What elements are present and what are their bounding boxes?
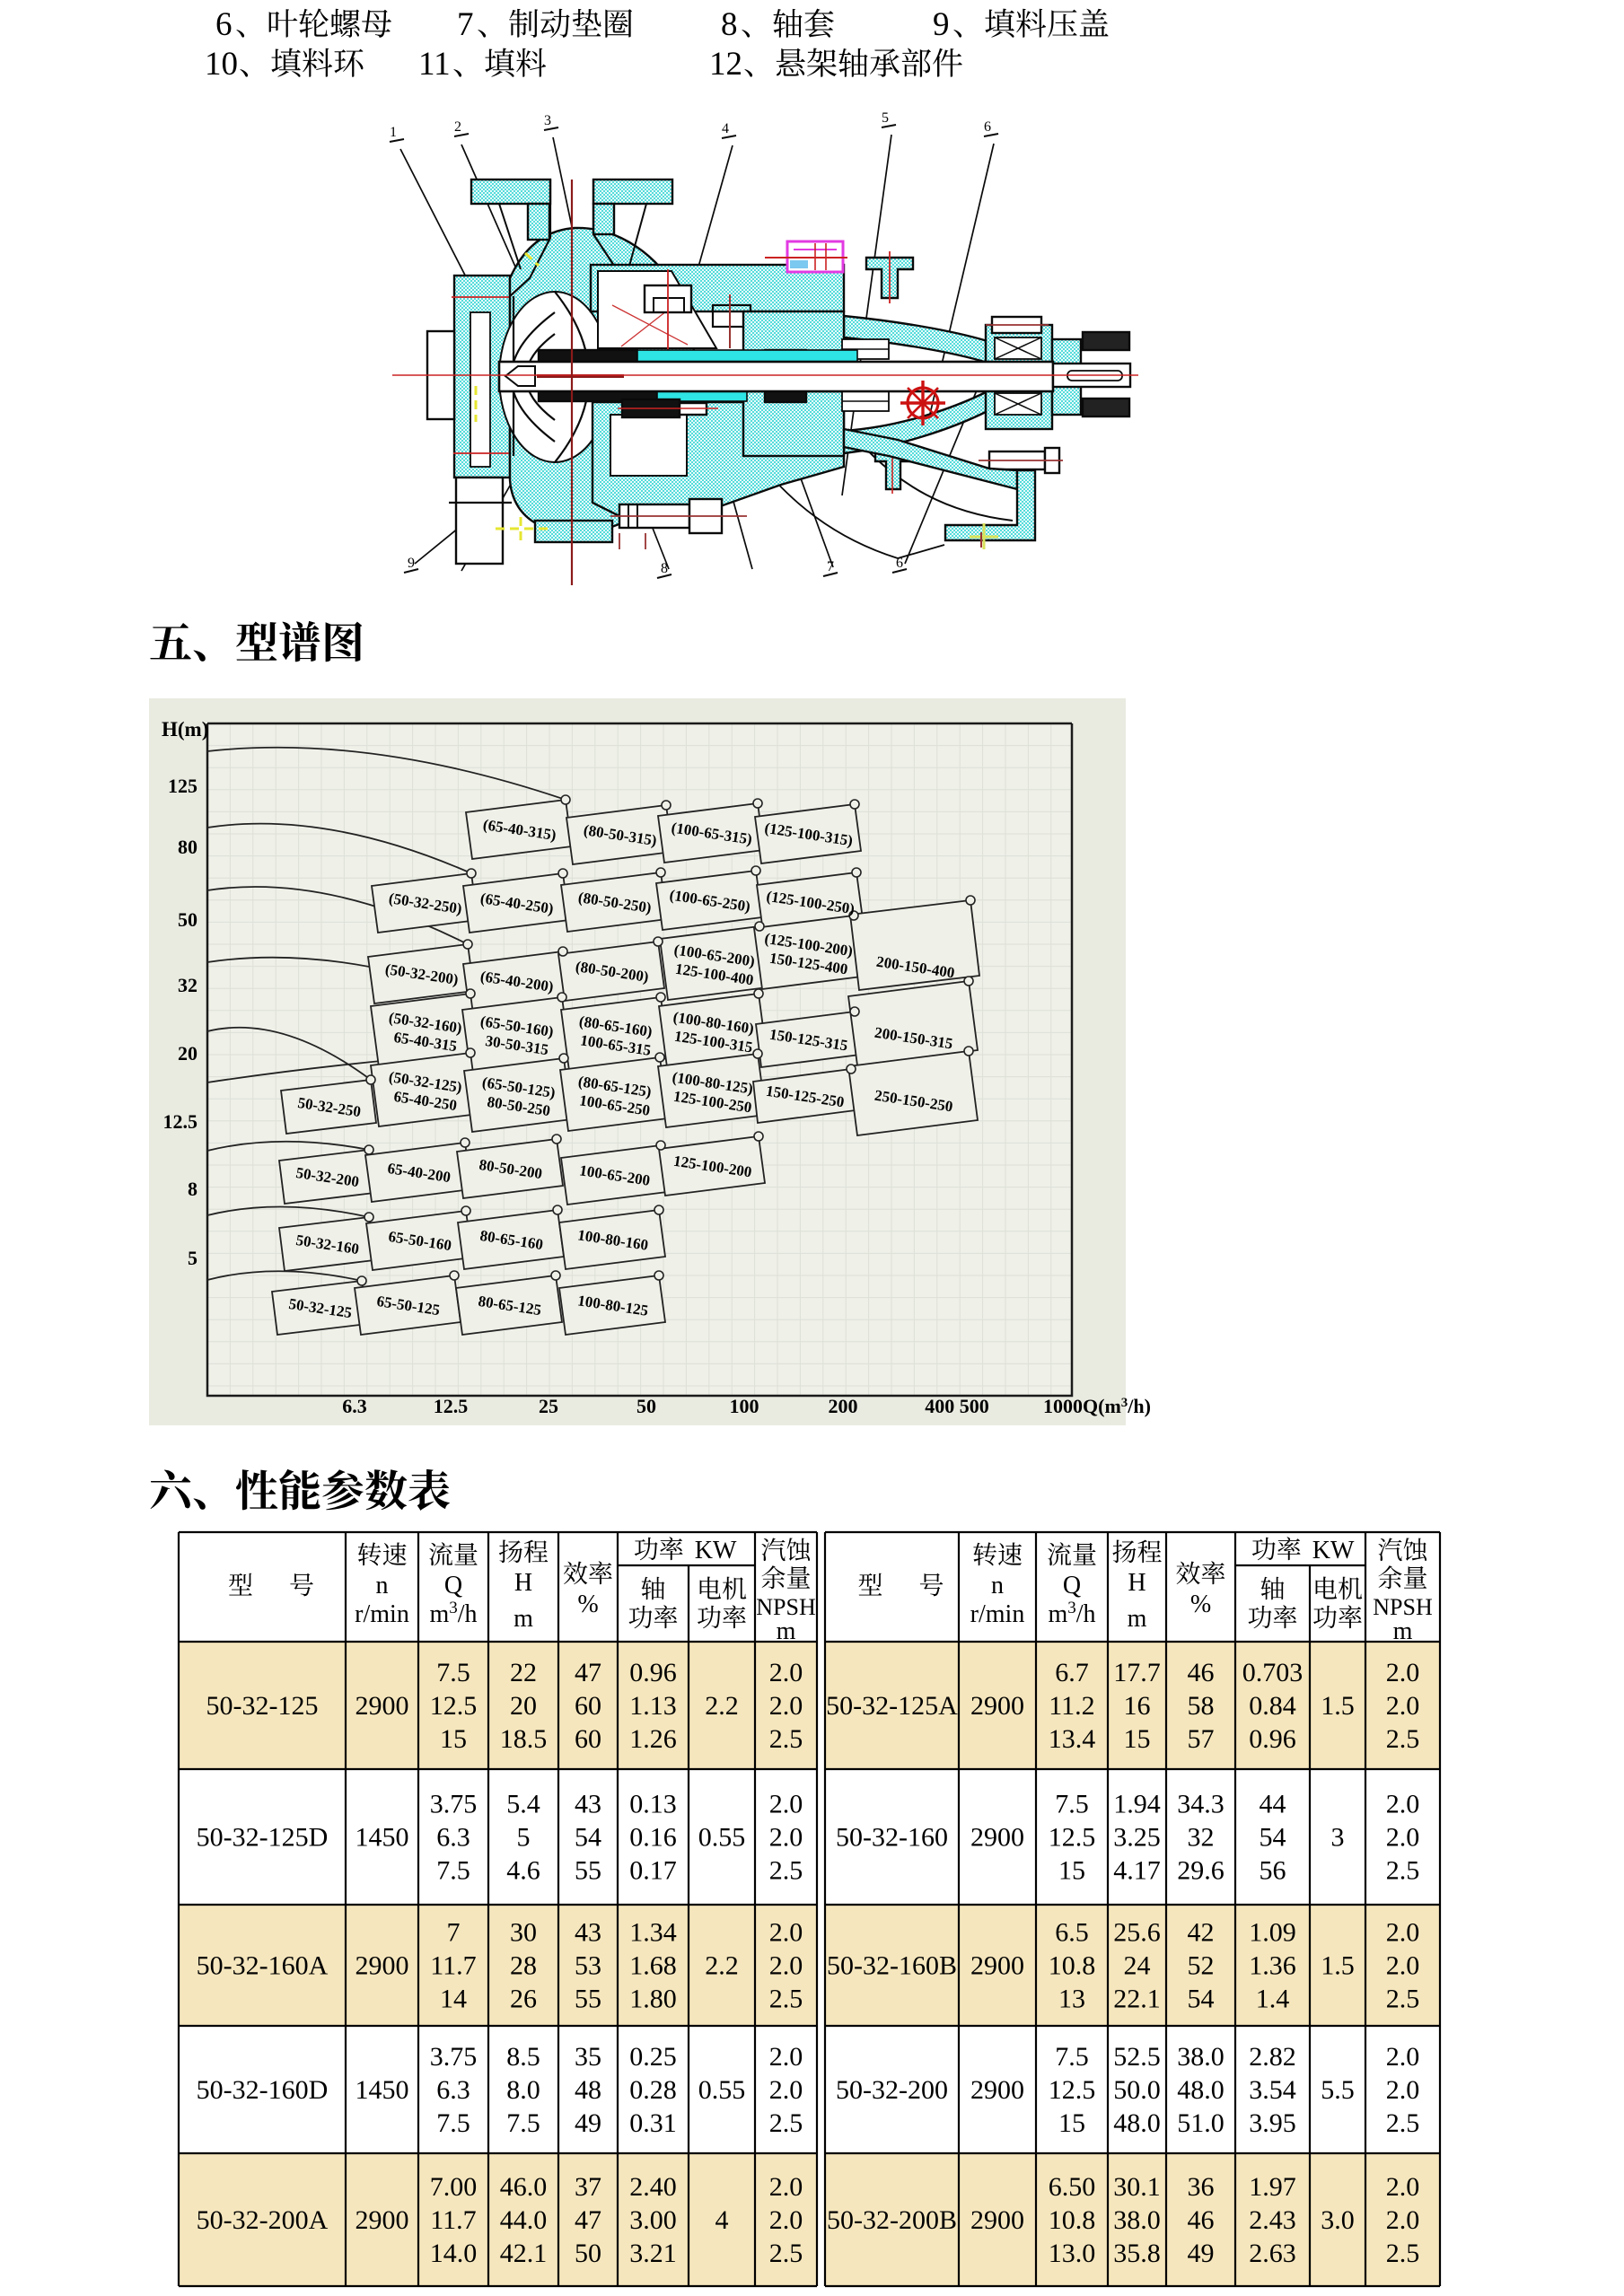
svg-text:2.0: 2.0: [769, 2172, 803, 2202]
svg-text:4: 4: [715, 2205, 729, 2235]
svg-text:0.55: 0.55: [698, 1823, 746, 1853]
svg-text:3.25: 3.25: [1113, 1823, 1161, 1853]
svg-text:m: m: [777, 1617, 796, 1645]
svg-text:2.0: 2.0: [1386, 1658, 1420, 1687]
svg-text:7.5: 7.5: [436, 2108, 470, 2138]
svg-text:50-32-160D: 50-32-160D: [197, 2075, 329, 2105]
svg-text:m: m: [1128, 1605, 1147, 1633]
svg-text:10: 10: [205, 46, 238, 83]
svg-text:2.0: 2.0: [1386, 1918, 1420, 1948]
svg-text:Q: Q: [444, 1572, 462, 1599]
svg-text:12.5: 12.5: [1049, 1823, 1096, 1853]
svg-text:1.5: 1.5: [1321, 1691, 1355, 1721]
svg-text:37: 37: [575, 2172, 601, 2202]
svg-text:50-32-200A: 50-32-200A: [197, 2205, 329, 2235]
svg-text:12.5: 12.5: [163, 1110, 198, 1133]
svg-text:1000Q(m3/h): 1000Q(m3/h): [1043, 1395, 1151, 1417]
svg-text:16: 16: [1124, 1691, 1151, 1721]
svg-text:7.5: 7.5: [1055, 1790, 1089, 1819]
svg-text:1450: 1450: [356, 2075, 409, 2105]
svg-text:0.96: 0.96: [629, 1658, 677, 1687]
svg-text:36: 36: [1188, 2172, 1215, 2202]
svg-text:29.6: 29.6: [1177, 1856, 1225, 1886]
svg-text:57: 57: [1188, 1724, 1215, 1754]
svg-text:2.0: 2.0: [769, 1918, 803, 1948]
svg-text:0.55: 0.55: [698, 2075, 746, 2105]
svg-text:12: 12: [709, 46, 742, 83]
svg-text:50-32-200B: 50-32-200B: [827, 2205, 957, 2235]
svg-text:11.7: 11.7: [430, 2205, 476, 2235]
svg-text:%: %: [577, 1591, 598, 1618]
svg-text:2900: 2900: [970, 1951, 1024, 1981]
svg-text:1: 1: [390, 125, 397, 140]
svg-text:6: 6: [984, 119, 991, 135]
svg-text:60: 60: [575, 1691, 601, 1721]
svg-text:22.1: 22.1: [1113, 1985, 1161, 2014]
svg-text:46.0: 46.0: [500, 2172, 548, 2202]
svg-text:8: 8: [721, 6, 738, 43]
svg-text:2.0: 2.0: [769, 1823, 803, 1853]
svg-text:52: 52: [1188, 1951, 1215, 1981]
svg-text:3.21: 3.21: [629, 2239, 677, 2268]
svg-text:44: 44: [1260, 1790, 1286, 1819]
svg-text:11.7: 11.7: [430, 1951, 476, 1981]
svg-text:13.4: 13.4: [1049, 1724, 1096, 1754]
svg-text:18.5: 18.5: [500, 1724, 548, 1754]
svg-text:6.7: 6.7: [1055, 1658, 1089, 1687]
svg-text:NPSH: NPSH: [1373, 1594, 1433, 1620]
svg-text:2.82: 2.82: [1249, 2042, 1296, 2072]
svg-text:7.5: 7.5: [436, 1856, 470, 1886]
svg-text:7.5: 7.5: [436, 1658, 470, 1687]
svg-text:50-32-125A: 50-32-125A: [826, 1691, 958, 1721]
svg-text:5.4: 5.4: [506, 1790, 540, 1819]
svg-text:NPSH: NPSH: [756, 1594, 816, 1620]
svg-text:2.5: 2.5: [769, 1856, 803, 1886]
svg-text:n: n: [991, 1572, 1004, 1599]
svg-text:2.0: 2.0: [769, 2075, 803, 2105]
svg-text:2900: 2900: [970, 2075, 1024, 2105]
svg-text:48.0: 48.0: [1113, 2108, 1161, 2138]
svg-text:5: 5: [517, 1823, 531, 1853]
svg-text:2.5: 2.5: [769, 2108, 803, 2138]
svg-text:12.5: 12.5: [430, 1691, 478, 1721]
svg-text:2.0: 2.0: [1386, 2042, 1420, 2072]
svg-text:100: 100: [730, 1395, 759, 1417]
svg-text:6: 6: [215, 6, 233, 43]
svg-text:46: 46: [1188, 1658, 1215, 1687]
svg-text:3.75: 3.75: [430, 2042, 478, 2072]
svg-text:35: 35: [575, 2042, 601, 2072]
svg-text:m: m: [1393, 1617, 1413, 1645]
svg-text:200: 200: [829, 1395, 858, 1417]
svg-text:55: 55: [575, 1856, 601, 1886]
svg-text:2.5: 2.5: [769, 1724, 803, 1754]
svg-text:34.3: 34.3: [1177, 1790, 1225, 1819]
svg-text:9: 9: [933, 6, 950, 43]
svg-text:2.0: 2.0: [1386, 2172, 1420, 2202]
svg-text:7: 7: [827, 559, 834, 574]
svg-text:8.0: 8.0: [506, 2075, 540, 2105]
svg-text:H: H: [514, 1569, 532, 1597]
svg-text:20: 20: [510, 1691, 537, 1721]
svg-text:7.00: 7.00: [430, 2172, 478, 2202]
svg-text:2.43: 2.43: [1249, 2205, 1296, 2235]
svg-text:25: 25: [539, 1395, 558, 1417]
svg-text:55: 55: [575, 1985, 601, 2014]
svg-text:5: 5: [188, 1247, 198, 1269]
svg-text:2.0: 2.0: [1386, 2075, 1420, 2105]
svg-text:0.17: 0.17: [629, 1856, 677, 1886]
svg-text:0.96: 0.96: [1249, 1724, 1296, 1754]
svg-text:125: 125: [168, 775, 198, 797]
svg-text:4.6: 4.6: [506, 1856, 540, 1886]
svg-text:9: 9: [408, 556, 415, 571]
svg-text:49: 49: [575, 2108, 601, 2138]
svg-text:25.6: 25.6: [1113, 1918, 1161, 1948]
svg-text:14: 14: [440, 1985, 467, 2014]
svg-text:50-32-125D: 50-32-125D: [197, 1823, 329, 1853]
svg-text:12.5: 12.5: [1049, 2075, 1096, 2105]
svg-text:50: 50: [575, 2239, 601, 2268]
svg-text:48.0: 48.0: [1177, 2075, 1225, 2105]
svg-text:1.94: 1.94: [1113, 1790, 1161, 1819]
svg-text:30: 30: [510, 1918, 537, 1948]
svg-text:2.0: 2.0: [769, 2205, 803, 2235]
svg-text:10.8: 10.8: [1049, 1951, 1096, 1981]
svg-text:8: 8: [188, 1178, 198, 1200]
svg-text:7.5: 7.5: [506, 2108, 540, 2138]
svg-text:54: 54: [1260, 1823, 1286, 1853]
svg-text:53: 53: [575, 1951, 601, 1981]
svg-text:20: 20: [178, 1042, 198, 1065]
svg-text:42: 42: [1188, 1918, 1215, 1948]
svg-text:2.0: 2.0: [1386, 1691, 1420, 1721]
svg-text:32: 32: [178, 974, 198, 996]
svg-text:KW: KW: [695, 1537, 737, 1564]
svg-text:2.0: 2.0: [1386, 1951, 1420, 1981]
svg-text:13: 13: [1058, 1985, 1085, 2014]
svg-text:0.84: 0.84: [1249, 1691, 1296, 1721]
svg-text:%: %: [1190, 1591, 1211, 1618]
svg-text:2900: 2900: [970, 1691, 1024, 1721]
svg-text:44.0: 44.0: [500, 2205, 548, 2235]
svg-text:14.0: 14.0: [430, 2239, 478, 2268]
svg-text:0.25: 0.25: [629, 2042, 677, 2072]
svg-text:5.5: 5.5: [1321, 2075, 1355, 2105]
svg-text:1450: 1450: [356, 1823, 409, 1853]
svg-text:2.2: 2.2: [705, 1691, 739, 1721]
svg-text:3: 3: [1331, 1823, 1345, 1853]
svg-text:50: 50: [178, 908, 198, 931]
svg-text:2.5: 2.5: [769, 2239, 803, 2268]
svg-text:2900: 2900: [356, 1951, 409, 1981]
svg-text:48: 48: [575, 2075, 601, 2105]
svg-text:10.8: 10.8: [1049, 2205, 1096, 2235]
svg-text:52.5: 52.5: [1113, 2042, 1161, 2072]
svg-text:2.5: 2.5: [769, 1985, 803, 2014]
svg-text:2.0: 2.0: [769, 1790, 803, 1819]
svg-text:5: 5: [882, 110, 889, 126]
svg-text:m3/h: m3/h: [429, 1599, 477, 1628]
svg-text:2.0: 2.0: [769, 2042, 803, 2072]
svg-text:H(m): H(m): [162, 718, 208, 741]
svg-text:m3/h: m3/h: [1048, 1599, 1095, 1628]
svg-text:6.3: 6.3: [342, 1395, 367, 1417]
svg-text:2.40: 2.40: [629, 2172, 677, 2202]
svg-text:2.0: 2.0: [1386, 1823, 1420, 1853]
svg-text:38.0: 38.0: [1177, 2042, 1225, 2072]
svg-text:7: 7: [457, 6, 474, 43]
svg-text:24: 24: [1124, 1951, 1151, 1981]
svg-text:15: 15: [1058, 1856, 1085, 1886]
svg-text:13.0: 13.0: [1049, 2239, 1096, 2268]
svg-text:1.5: 1.5: [1321, 1951, 1355, 1981]
svg-text:0.28: 0.28: [629, 2075, 677, 2105]
svg-text:1.26: 1.26: [629, 1724, 677, 1754]
svg-text:54: 54: [575, 1823, 601, 1853]
svg-text:38.0: 38.0: [1113, 2205, 1161, 2235]
svg-text:3.54: 3.54: [1249, 2075, 1296, 2105]
svg-text:6.3: 6.3: [436, 1823, 470, 1853]
svg-text:0.13: 0.13: [629, 1790, 677, 1819]
svg-text:1.97: 1.97: [1249, 2172, 1296, 2202]
svg-text:22: 22: [510, 1658, 537, 1687]
svg-text:3.00: 3.00: [629, 2205, 677, 2235]
svg-text:28: 28: [510, 1951, 537, 1981]
svg-text:42.1: 42.1: [500, 2239, 548, 2268]
svg-text:49: 49: [1188, 2239, 1215, 2268]
svg-text:r/min: r/min: [970, 1600, 1025, 1628]
svg-text:8.5: 8.5: [506, 2042, 540, 2072]
svg-text:3.75: 3.75: [430, 1790, 478, 1819]
svg-text:0.31: 0.31: [629, 2108, 677, 2138]
svg-text:m: m: [514, 1605, 533, 1633]
svg-text:H: H: [1128, 1569, 1146, 1597]
svg-text:7: 7: [447, 1918, 461, 1948]
svg-text:4: 4: [722, 121, 729, 136]
svg-text:2.0: 2.0: [769, 1658, 803, 1687]
svg-text:1.13: 1.13: [629, 1691, 677, 1721]
svg-text:3: 3: [544, 113, 551, 128]
svg-text:1.4: 1.4: [1256, 1985, 1290, 2014]
svg-text:2900: 2900: [356, 2205, 409, 2235]
svg-text:50-32-160: 50-32-160: [836, 1823, 948, 1853]
svg-text:2: 2: [454, 119, 461, 135]
svg-text:50-32-160A: 50-32-160A: [197, 1951, 329, 1981]
svg-text:2.0: 2.0: [769, 1691, 803, 1721]
svg-text:2.5: 2.5: [1386, 1985, 1420, 2014]
svg-text:8: 8: [661, 561, 668, 576]
svg-text:6.5: 6.5: [1055, 1918, 1089, 1948]
svg-text:2.0: 2.0: [769, 1951, 803, 1981]
svg-text:17.7: 17.7: [1113, 1658, 1161, 1687]
svg-text:50-32-200: 50-32-200: [836, 2075, 948, 2105]
svg-text:15: 15: [1124, 1724, 1151, 1754]
svg-text:2.5: 2.5: [1386, 1724, 1420, 1754]
svg-text:0.703: 0.703: [1242, 1658, 1304, 1687]
svg-text:80: 80: [178, 836, 198, 858]
svg-text:43: 43: [575, 1918, 601, 1948]
svg-text:2.5: 2.5: [1386, 1856, 1420, 1886]
svg-text:56: 56: [1260, 1856, 1286, 1886]
svg-text:1.68: 1.68: [629, 1951, 677, 1981]
svg-text:15: 15: [1058, 2108, 1085, 2138]
svg-text:Q: Q: [1063, 1572, 1081, 1599]
svg-text:2900: 2900: [970, 2205, 1024, 2235]
svg-text:15: 15: [440, 1724, 467, 1754]
svg-text:r/min: r/min: [355, 1600, 409, 1628]
svg-text:1.09: 1.09: [1249, 1918, 1296, 1948]
svg-text:46: 46: [1188, 2205, 1215, 2235]
svg-text:47: 47: [575, 1658, 601, 1687]
svg-text:1.34: 1.34: [629, 1918, 677, 1948]
svg-text:2.5: 2.5: [1386, 2239, 1420, 2268]
svg-text:35.8: 35.8: [1113, 2239, 1161, 2268]
svg-text:47: 47: [575, 2205, 601, 2235]
svg-text:58: 58: [1188, 1691, 1215, 1721]
svg-text:2.0: 2.0: [1386, 2205, 1420, 2235]
svg-text:54: 54: [1188, 1985, 1215, 2014]
svg-text:2900: 2900: [356, 1691, 409, 1721]
svg-text:43: 43: [575, 1790, 601, 1819]
svg-text:3.0: 3.0: [1321, 2205, 1355, 2235]
svg-text:7.5: 7.5: [1055, 2042, 1089, 2072]
svg-text:3.95: 3.95: [1249, 2108, 1296, 2138]
svg-text:26: 26: [510, 1985, 537, 2014]
svg-text:0.16: 0.16: [629, 1823, 677, 1853]
svg-text:2900: 2900: [970, 1823, 1024, 1853]
svg-text:2.0: 2.0: [1386, 1790, 1420, 1819]
svg-text:50: 50: [636, 1395, 656, 1417]
svg-text:50.0: 50.0: [1113, 2075, 1161, 2105]
svg-text:11: 11: [418, 46, 451, 83]
svg-text:1.80: 1.80: [629, 1985, 677, 2014]
svg-text:2.63: 2.63: [1249, 2239, 1296, 2268]
svg-text:50-32-125: 50-32-125: [206, 1691, 319, 1721]
svg-text:50-32-160B: 50-32-160B: [827, 1951, 957, 1981]
svg-text:30.1: 30.1: [1113, 2172, 1161, 2202]
svg-text:n: n: [376, 1572, 389, 1599]
svg-text:2.5: 2.5: [1386, 2108, 1420, 2138]
svg-text:KW: KW: [1312, 1537, 1355, 1564]
svg-text:6.3: 6.3: [436, 2075, 470, 2105]
svg-text:2.2: 2.2: [705, 1951, 739, 1981]
svg-text:12.5: 12.5: [434, 1395, 469, 1417]
svg-text:1.36: 1.36: [1249, 1951, 1296, 1981]
svg-text:32: 32: [1188, 1823, 1215, 1853]
svg-text:51.0: 51.0: [1177, 2108, 1225, 2138]
svg-text:4.17: 4.17: [1113, 1856, 1161, 1886]
svg-text:11.2: 11.2: [1049, 1691, 1094, 1721]
svg-text:60: 60: [575, 1724, 601, 1754]
svg-text:400 500: 400 500: [925, 1395, 989, 1417]
svg-text:6.50: 6.50: [1049, 2172, 1096, 2202]
